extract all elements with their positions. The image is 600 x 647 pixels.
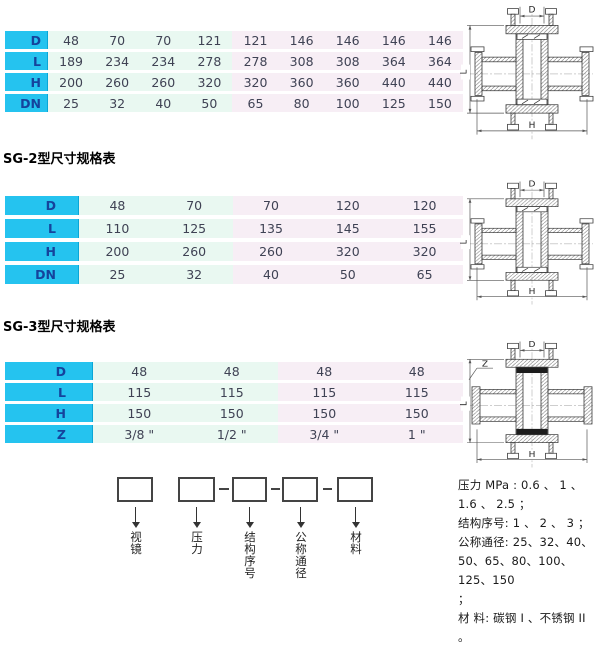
table-cell: 200 <box>79 242 156 261</box>
svg-text:H: H <box>529 121 536 131</box>
note-line: 材 料: 碳钢 I 、不锈钢 II <box>458 609 600 628</box>
table-cell: 120 <box>386 196 463 215</box>
table-cell: 320 <box>232 73 278 91</box>
down-arrow-icon <box>135 507 136 522</box>
table-cell: 3/4 " <box>278 425 371 443</box>
table-cell: 25 <box>79 265 156 284</box>
table-cell: 115 <box>186 383 279 401</box>
row-label: H <box>5 404 93 422</box>
table-cell: 115 <box>93 383 186 401</box>
table-cell: 278 <box>186 52 232 70</box>
table-cell: 150 <box>186 404 279 422</box>
table-cell: 32 <box>156 265 233 284</box>
table-cell: 48 <box>186 362 279 380</box>
spec-notes-text: 压力 MPa : 0.6 、 1 、 1.6 、 2.5 ； 结构序号: 1 、… <box>458 476 600 647</box>
row-label: DN <box>5 94 48 112</box>
table-cell: 150 <box>278 404 371 422</box>
table-cell: 155 <box>386 219 463 238</box>
table-cell: 150 <box>417 94 463 112</box>
table-cell: 50 <box>309 265 386 284</box>
spec-table-sg2: D487070120120L110125135145155H2002602603… <box>5 196 463 284</box>
table-cell: 1/2 " <box>186 425 279 443</box>
svg-text:L: L <box>460 240 469 245</box>
note-line: 。 <box>458 628 600 647</box>
designation-box-pressure <box>178 477 215 502</box>
spec-table-sg1: D487070121121146146146146L18923423427827… <box>5 31 463 112</box>
designation-label-pressure: 压 力 <box>191 531 203 555</box>
table-cell: 70 <box>140 31 186 49</box>
table-cell: 125 <box>156 219 233 238</box>
drawing-sg2-flanged-sight-glass: DLH <box>460 178 598 308</box>
table-cell: 65 <box>386 265 463 284</box>
designation-box-structure <box>232 477 267 502</box>
table-cell: 135 <box>233 219 310 238</box>
table-cell: 146 <box>371 31 417 49</box>
table-cell: 80 <box>279 94 325 112</box>
sight-glass-cross-section-drawing: DLH <box>460 178 598 308</box>
note-line: 50、65、80、100、125、150 <box>458 552 600 590</box>
table-cell: 150 <box>93 404 186 422</box>
table-cell: 440 <box>417 73 463 91</box>
table-cell: 146 <box>325 31 371 49</box>
row-label: Z <box>5 425 93 443</box>
table-cell: 260 <box>156 242 233 261</box>
row-label: D <box>5 362 93 380</box>
row-label: L <box>5 219 79 238</box>
table-cell: 360 <box>325 73 371 91</box>
table-cell: 360 <box>279 73 325 91</box>
designation-label-material: 材 料 <box>350 531 362 555</box>
svg-text:D: D <box>529 6 536 16</box>
svg-text:D: D <box>529 179 536 188</box>
table-cell: 146 <box>279 31 325 49</box>
down-arrow-icon <box>355 507 356 522</box>
table-cell: 364 <box>417 52 463 70</box>
table-cell: 189 <box>48 52 94 70</box>
svg-text:H: H <box>529 287 536 296</box>
table-cell: 25 <box>48 94 94 112</box>
note-line: 结构序号: 1 、 2 、 3 ； <box>458 514 600 533</box>
table-cell: 234 <box>140 52 186 70</box>
table-cell: 32 <box>94 94 140 112</box>
note-line: ； <box>458 590 600 609</box>
table-cell: 320 <box>386 242 463 261</box>
table-cell: 48 <box>278 362 371 380</box>
table-cell: 308 <box>325 52 371 70</box>
table-cell: 440 <box>371 73 417 91</box>
table-cell: 3/8 " <box>93 425 186 443</box>
note-line: 公称通径: 25、32、40、 <box>458 533 600 552</box>
table-cell: 100 <box>325 94 371 112</box>
table-cell: 70 <box>156 196 233 215</box>
table-cell: 150 <box>371 404 464 422</box>
table-cell: 48 <box>79 196 156 215</box>
svg-text:L: L <box>460 70 470 75</box>
svg-text:Z: Z <box>482 360 488 369</box>
table-cell: 320 <box>186 73 232 91</box>
table-cell: 48 <box>371 362 464 380</box>
designation-box-material <box>337 477 373 502</box>
dash-connector <box>219 488 229 490</box>
note-line: 1.6 、 2.5 ； <box>458 495 600 514</box>
table-cell: 121 <box>186 31 232 49</box>
table-cell: 40 <box>140 94 186 112</box>
row-label: D <box>5 31 48 49</box>
table-cell: 260 <box>94 73 140 91</box>
spec-document-page: D487070121121146146146146L18923423427827… <box>0 0 600 621</box>
svg-text:H: H <box>529 450 536 459</box>
row-label: DN <box>5 265 79 284</box>
table-cell: 121 <box>232 31 278 49</box>
table-cell: 48 <box>93 362 186 380</box>
row-label: H <box>5 73 48 91</box>
drawing-sg1-flanged-sight-glass: DLH <box>460 3 598 143</box>
down-arrow-icon <box>300 507 301 522</box>
designation-label-structure-number: 结 构 序 号 <box>244 531 256 579</box>
table-cell: 200 <box>48 73 94 91</box>
row-label: L <box>5 52 48 70</box>
designation-box-product <box>117 477 153 502</box>
table-cell: 110 <box>79 219 156 238</box>
table-cell: 115 <box>371 383 464 401</box>
table-title-sg2: SG-2型尺寸规格表 <box>3 148 115 167</box>
table-cell: 1 " <box>371 425 464 443</box>
designation-label-nominal-diameter: 公 称 通 径 <box>295 531 307 579</box>
table-cell: 40 <box>233 265 310 284</box>
row-label: D <box>5 196 79 215</box>
table-cell: 234 <box>94 52 140 70</box>
note-line: 压力 MPa : 0.6 、 1 、 <box>458 476 600 495</box>
table-cell: 65 <box>232 94 278 112</box>
table-cell: 70 <box>233 196 310 215</box>
down-arrow-icon <box>249 507 250 522</box>
table-cell: 48 <box>48 31 94 49</box>
table-cell: 70 <box>94 31 140 49</box>
down-arrow-icon <box>196 507 197 522</box>
dash-connector <box>271 488 280 490</box>
table-cell: 364 <box>371 52 417 70</box>
drawing-sg3-threaded-sight-glass: DLHZ <box>460 338 598 471</box>
designation-label-sight-glass: 视 镜 <box>130 531 142 555</box>
table-cell: 278 <box>232 52 278 70</box>
row-label: H <box>5 242 79 261</box>
table-cell: 50 <box>186 94 232 112</box>
table-cell: 320 <box>309 242 386 261</box>
table-cell: 146 <box>417 31 463 49</box>
sight-glass-cross-section-drawing: DLHZ <box>460 338 598 471</box>
row-label: L <box>5 383 93 401</box>
svg-text:D: D <box>529 340 536 349</box>
table-cell: 120 <box>309 196 386 215</box>
table-cell: 145 <box>309 219 386 238</box>
designation-box-diameter <box>282 477 318 502</box>
sight-glass-cross-section-drawing: DLH <box>460 3 598 143</box>
table-cell: 115 <box>278 383 371 401</box>
table-title-sg3: SG-3型尺寸规格表 <box>3 316 115 335</box>
svg-text:L: L <box>460 401 470 406</box>
table-cell: 308 <box>279 52 325 70</box>
table-cell: 125 <box>371 94 417 112</box>
spec-table-sg3: D48484848L115115115115H150150150150Z3/8 … <box>5 362 463 443</box>
table-cell: 260 <box>233 242 310 261</box>
table-cell: 260 <box>140 73 186 91</box>
dash-connector <box>323 488 332 490</box>
